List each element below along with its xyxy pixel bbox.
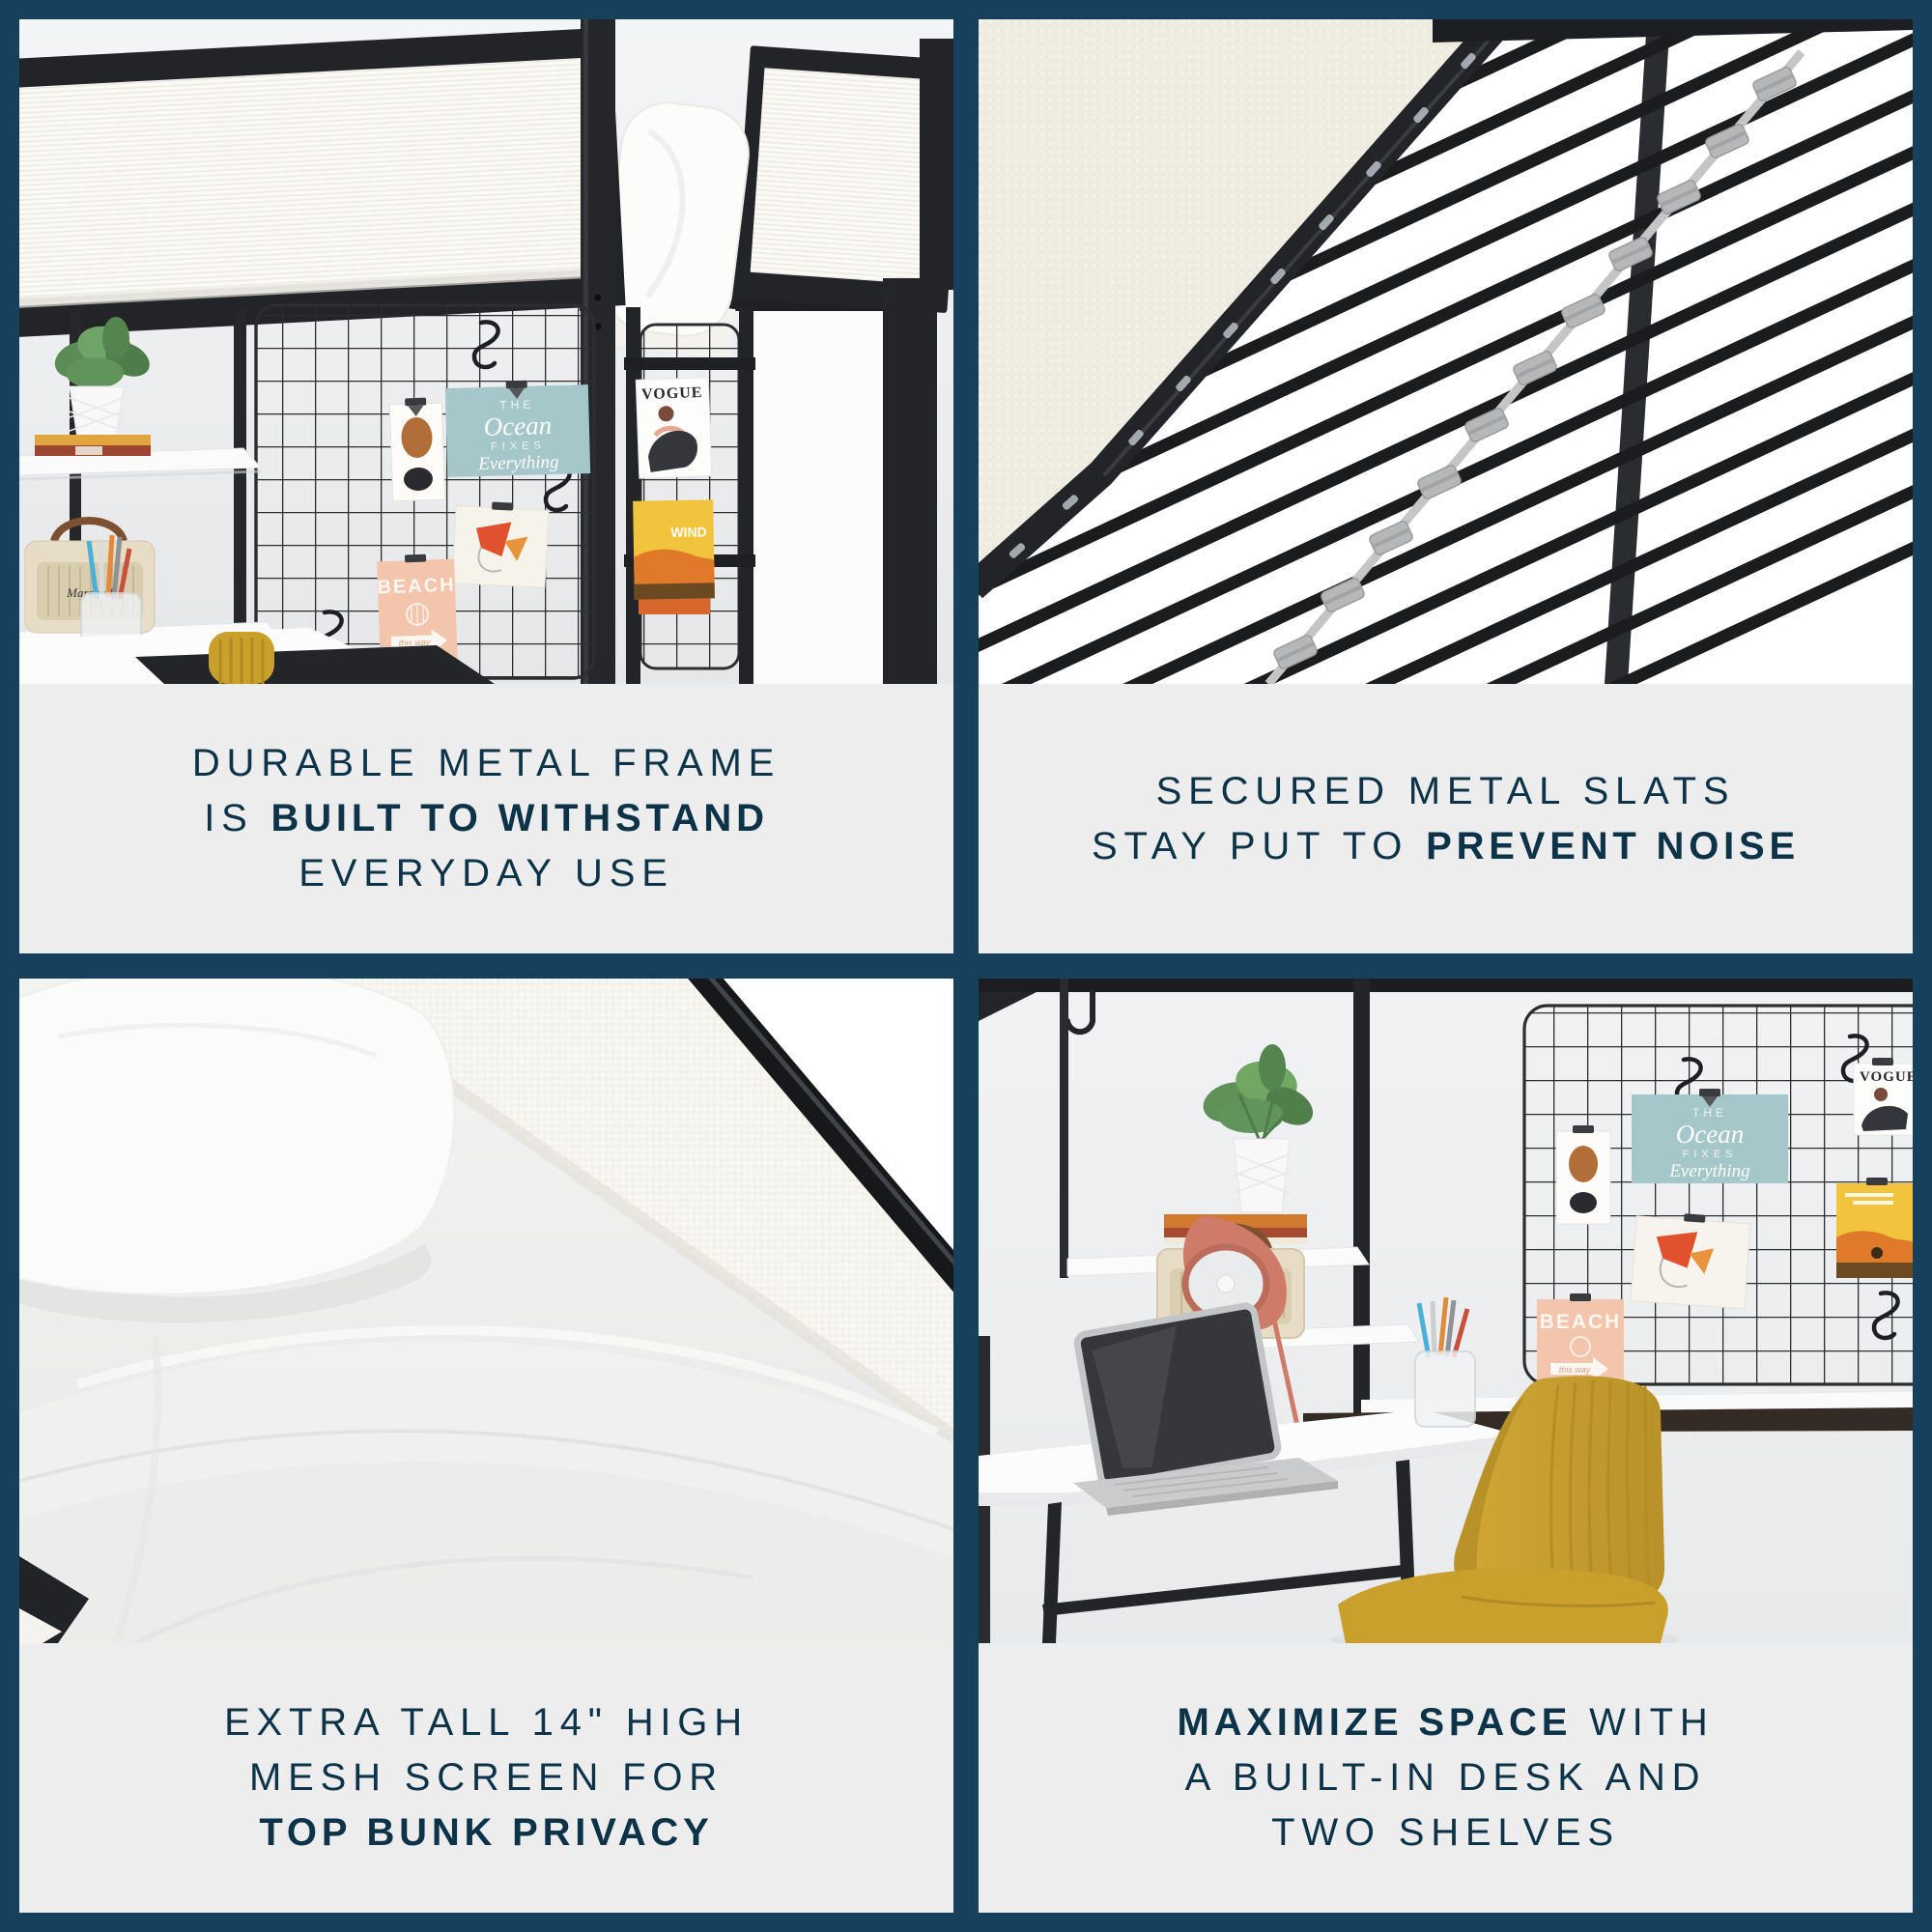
photo-mesh-screen <box>19 979 953 1643</box>
ladder-grid-rack <box>640 325 739 668</box>
caption-text: WITH <box>1572 1701 1714 1744</box>
caption-line: EVERYDAY USE <box>298 846 673 901</box>
beach-poster: BEACH this way <box>1537 1293 1624 1382</box>
feature-panel-built-in-desk: THE Ocean FIXES Everything VOGUE <box>979 979 1913 1913</box>
top-bunk-mesh-screen-illustration <box>19 979 953 1643</box>
vogue-magazine: VOGUE <box>1854 1058 1913 1135</box>
caption-line: MAXIMIZE SPACE WITH <box>1177 1695 1714 1750</box>
caption-text: A BUILT-IN DESK AND <box>1185 1756 1707 1799</box>
center-frame-post <box>1353 979 1370 1415</box>
poster-text: Everything <box>477 452 559 474</box>
caption-text: STAY PUT TO <box>1092 825 1426 867</box>
kite-sketch-card <box>1631 1210 1750 1309</box>
poster-text: BEACH <box>1540 1311 1622 1333</box>
poster-text: BEACH <box>377 575 456 599</box>
photo-metal-slats <box>979 19 1913 684</box>
feature-panel-metal-slats: SECURED METAL SLATS STAY PUT TO PREVENT … <box>979 19 1913 953</box>
books <box>35 435 151 456</box>
corner-post <box>920 39 953 290</box>
photo-durable-frame: THE Ocean FIXES Everything BEACH <box>19 19 953 684</box>
caption-text-bold: BUILT TO WITHSTAND <box>271 797 769 839</box>
caption-text-bold: TOP BUNK PRIVACY <box>259 1811 713 1854</box>
top-frame-bar <box>979 979 1913 992</box>
caption-line: EXTRA TALL 14" HIGH <box>224 1695 749 1750</box>
caption-line: A BUILT-IN DESK AND <box>1185 1750 1707 1805</box>
ocean-poster: THE Ocean FIXES Everything <box>445 379 591 477</box>
clip-card-abstract <box>389 397 445 501</box>
feature-panel-mesh-screen: EXTRA TALL 14" HIGH MESH SCREEN FOR TOP … <box>19 979 953 1913</box>
poster-text: FIXES <box>491 440 546 452</box>
caption-line: DURABLE METAL FRAME <box>192 736 781 791</box>
bike-poster <box>1836 1178 1913 1278</box>
caption-text: EVERYDAY USE <box>298 852 673 895</box>
poster-text: VOGUE <box>1860 1069 1913 1085</box>
poster-text: WIND <box>670 524 707 540</box>
caption-text: SECURED METAL SLATS <box>1156 770 1736 812</box>
caption-metal-slats: SECURED METAL SLATS STAY PUT TO PREVENT … <box>979 684 1913 953</box>
bolt <box>595 295 602 301</box>
caption-text: TWO SHELVES <box>1271 1811 1620 1854</box>
metal-slats-illustration <box>979 19 1913 684</box>
loft-bed-frame-illustration: THE Ocean FIXES Everything BEACH <box>19 19 953 684</box>
poster-text: Ocean <box>483 411 552 441</box>
poster-text: Ocean <box>1676 1120 1744 1149</box>
desk-chair-top <box>209 632 274 684</box>
caption-line: IS BUILT TO WITHSTAND <box>204 791 769 846</box>
feature-panel-durable-frame: THE Ocean FIXES Everything BEACH <box>19 19 953 953</box>
built-in-desk-illustration: THE Ocean FIXES Everything VOGUE <box>979 979 1913 1643</box>
caption-built-in-desk: MAXIMIZE SPACE WITH A BUILT-IN DESK AND … <box>979 1643 1913 1913</box>
white-screen-back-panel <box>753 280 889 684</box>
photo-built-in-desk: THE Ocean FIXES Everything VOGUE <box>979 979 1913 1643</box>
poster-text: THE <box>1692 1106 1727 1120</box>
vogue-magazine: VOGUE <box>636 378 712 479</box>
clip-card-abstract <box>1556 1125 1610 1224</box>
right-frame-post <box>883 278 937 684</box>
wind-magazine: WIND <box>633 499 715 599</box>
caption-line: STAY PUT TO PREVENT NOISE <box>1092 819 1800 874</box>
caption-text: EXTRA TALL 14" HIGH <box>224 1701 749 1744</box>
caption-text-bold: PREVENT NOISE <box>1426 825 1800 867</box>
ocean-poster: THE Ocean FIXES Everything <box>1632 1089 1788 1183</box>
caption-mesh-screen: EXTRA TALL 14" HIGH MESH SCREEN FOR TOP … <box>19 1643 953 1913</box>
poster-text: THE <box>499 398 534 412</box>
caption-line: TOP BUNK PRIVACY <box>259 1805 713 1861</box>
feature-grid: THE Ocean FIXES Everything BEACH <box>0 0 1932 1932</box>
poster-text: Everything <box>1668 1161 1749 1181</box>
pillow <box>19 979 454 1322</box>
poster-text: VOGUE <box>641 384 703 403</box>
kite-sketch-card <box>452 500 549 588</box>
caption-text: IS <box>204 797 270 839</box>
caption-text: MESH SCREEN FOR <box>249 1756 724 1799</box>
caption-durable-frame: DURABLE METAL FRAME IS BUILT TO WITHSTAN… <box>19 684 953 953</box>
poster-text: FIXES <box>1683 1149 1738 1160</box>
poster-text: this way <box>1559 1365 1591 1375</box>
mesh-guard-panel-left <box>19 27 626 338</box>
caption-text: DURABLE METAL FRAME <box>192 742 781 784</box>
left-frame-post <box>1060 979 1068 1278</box>
caption-line: TWO SHELVES <box>1271 1805 1620 1861</box>
caption-text-bold: MAXIMIZE SPACE <box>1177 1701 1572 1744</box>
caption-line: SECURED METAL SLATS <box>1156 764 1736 819</box>
caption-line: MESH SCREEN FOR <box>249 1750 724 1805</box>
ladder <box>624 307 755 684</box>
